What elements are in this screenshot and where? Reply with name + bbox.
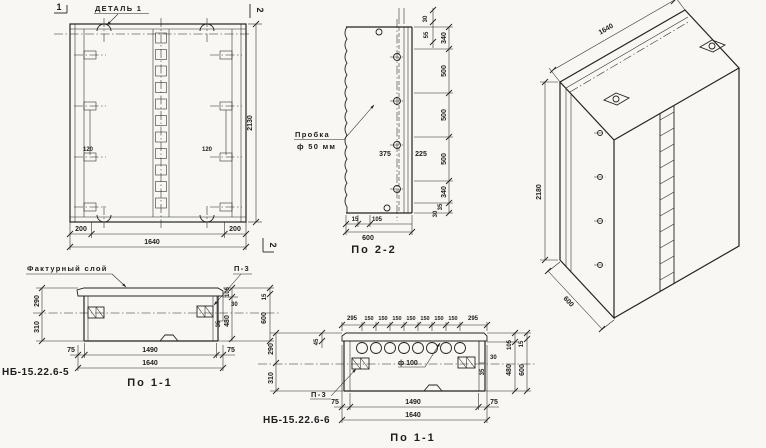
dim-top-30: 30 — [423, 15, 429, 22]
section-1-1-left: Фактурный слой П-3 290 310 105 30 35 480… — [2, 264, 280, 389]
dim-340-top: 340 — [441, 32, 448, 44]
hole-row — [357, 343, 466, 354]
dim-bot-30: 30 — [433, 210, 439, 217]
dim-150: 150 — [378, 316, 387, 322]
dim-150: 150 — [448, 316, 457, 322]
dim-120-right: 120 — [202, 147, 213, 153]
embedded-plates — [88, 306, 213, 318]
bl-bottom-dims: 75 1490 75 1640 — [67, 343, 235, 371]
dim-500-2: 500 — [441, 109, 448, 121]
dim-105-r: 105 — [507, 339, 513, 350]
broken-edge — [345, 27, 347, 213]
dim-150: 150 — [420, 316, 429, 322]
dim-340-bottom: 340 — [441, 186, 448, 198]
dim-1490: 1490 — [142, 347, 158, 354]
dim-bot-35: 35 — [438, 203, 444, 210]
dim-310-r: 310 — [268, 372, 275, 384]
dim-200-left: 200 — [75, 226, 87, 233]
section-2-2: Пробка ф 50 мм 375 225 30 55 340 500 — [294, 7, 453, 256]
iso-dims: 1640 2180 600 — [536, 0, 685, 332]
bottom-notch-6 — [424, 385, 442, 391]
detail-label: ДЕТАЛЬ 1 — [95, 4, 142, 13]
dim-200-right: 200 — [229, 226, 241, 233]
dim-225: 225 — [415, 151, 427, 158]
dim-35-r: 35 — [480, 368, 486, 375]
product-code-5: НБ-15.22.6-5 — [2, 367, 69, 378]
cut-marks: 1 2 2 — [54, 2, 278, 252]
edge-brackets — [74, 51, 242, 211]
section-1-1-right: 295 150 150 150 150 150 150 150 295 290 … — [258, 316, 535, 444]
dim-290: 290 — [34, 295, 41, 307]
dim-1490-r: 1490 — [405, 399, 421, 406]
cut-mark-2-top: 2 — [255, 7, 265, 12]
dim-480-r: 480 — [506, 364, 513, 376]
dim-290-r: 290 — [268, 343, 275, 355]
dim-2130: 2130 — [247, 115, 254, 131]
dim-15-r: 15 — [519, 340, 525, 347]
iso-dim-2180: 2180 — [536, 184, 543, 200]
dim-375: 375 — [379, 151, 391, 158]
section-1-1-left-title: По 1-1 — [127, 377, 173, 389]
front-height-dim: 2130 — [247, 21, 262, 225]
dim-30: 30 — [231, 302, 238, 308]
dim-1640: 1640 — [142, 360, 158, 367]
dim-105: 105 — [225, 286, 231, 297]
dim-120-left: 120 — [83, 147, 94, 153]
front-bottom-dims: 200 200 1640 — [67, 222, 249, 250]
plate-label-p3-right: П-3 — [311, 390, 327, 399]
iso-groove — [660, 106, 674, 291]
dim-150: 150 — [434, 316, 443, 322]
facing-strip — [77, 288, 223, 296]
iso-holes — [594, 131, 606, 268]
bottom-notch — [160, 335, 178, 341]
bm-top-dims: 295 150 150 150 150 150 150 150 295 — [339, 316, 490, 331]
dim-295-left: 295 — [347, 316, 358, 322]
plate-label-p3: П-3 — [234, 264, 250, 273]
dim-600: 600 — [362, 235, 374, 242]
facing-strip-6 — [342, 333, 487, 341]
plug-label-line2: ф 50 мм — [297, 142, 336, 151]
dim-150: 150 — [406, 316, 415, 322]
dim-35: 35 — [216, 320, 222, 327]
front-view: 120 120 200 200 1640 2130 — [54, 2, 278, 252]
dim-75-right: 75 — [227, 347, 235, 354]
dim-15: 15 — [352, 217, 359, 223]
plug-holes — [376, 29, 404, 211]
cut-mark-1: 1 — [56, 2, 61, 12]
dim-600: 600 — [261, 312, 268, 324]
facing-label: Фактурный слой — [27, 264, 108, 273]
iso-anchors — [604, 40, 725, 105]
dim-30-r: 30 — [490, 355, 497, 361]
dim-75-left-r: 75 — [331, 399, 339, 406]
edge-rib-6 — [479, 341, 485, 363]
iso-dim-1640: 1640 — [598, 23, 615, 37]
dim-45: 45 — [314, 338, 320, 345]
dim-500-3: 500 — [441, 153, 448, 165]
dovetail-groove — [153, 18, 169, 228]
section-2-2-title: По 2-2 — [351, 244, 397, 256]
plug-label-line1: Пробка — [295, 130, 330, 139]
s22-bottom-dims: 15 105 600 — [343, 215, 415, 242]
hole-diameter-label: ф 100 — [398, 360, 418, 367]
dim-150: 150 — [392, 316, 401, 322]
dim-500-1: 500 — [441, 65, 448, 77]
drawing-sheet: 120 120 200 200 1640 2130 — [0, 0, 766, 448]
dim-15: 15 — [262, 293, 268, 300]
dim-150: 150 — [364, 316, 373, 322]
dim-105: 105 — [372, 217, 383, 223]
dim-75-right-r: 75 — [490, 399, 498, 406]
dim-295-right: 295 — [468, 316, 479, 322]
dim-600-r: 600 — [519, 364, 526, 376]
panel-drawing: 120 120 200 200 1640 2130 — [0, 0, 766, 448]
dim-310: 310 — [34, 321, 41, 333]
dim-top-55: 55 — [424, 31, 430, 38]
dim-75-left: 75 — [67, 347, 75, 354]
cut-mark-2-bottom: 2 — [268, 242, 278, 247]
iso-view: 1640 2180 600 — [536, 0, 739, 332]
product-code-6: НБ-15.22.6-6 — [263, 415, 330, 426]
dim-1640: 1640 — [144, 239, 160, 246]
s22-right-chain: 340 500 500 500 340 35 30 — [414, 24, 453, 217]
dim-1640-r: 1640 — [405, 412, 421, 419]
section-1-1-right-title: По 1-1 — [390, 432, 436, 444]
dim-480: 480 — [224, 315, 231, 327]
